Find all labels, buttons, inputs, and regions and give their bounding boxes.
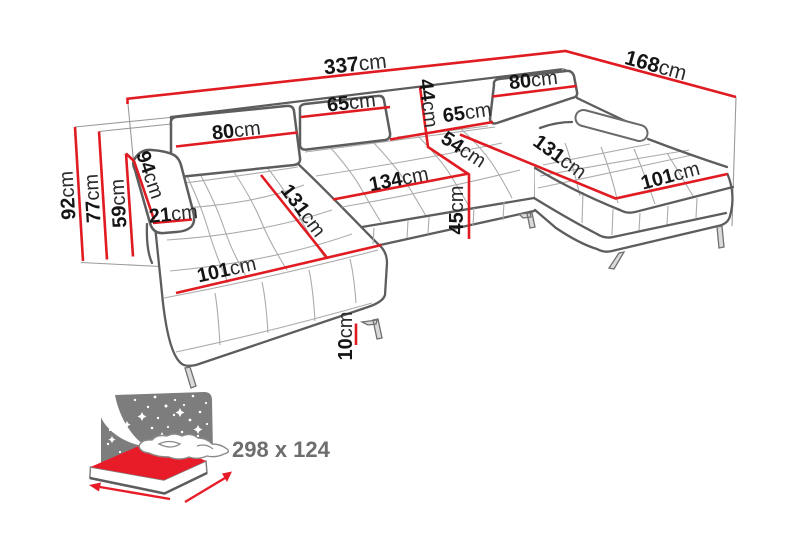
svg-text:92cm: 92cm [56,170,81,220]
svg-text:10cm: 10cm [335,312,357,361]
svg-text:77cm: 77cm [81,173,106,223]
svg-text:45cm: 45cm [446,186,468,235]
svg-text:298 x 124: 298 x 124 [232,437,331,462]
svg-text:59cm: 59cm [107,178,132,228]
